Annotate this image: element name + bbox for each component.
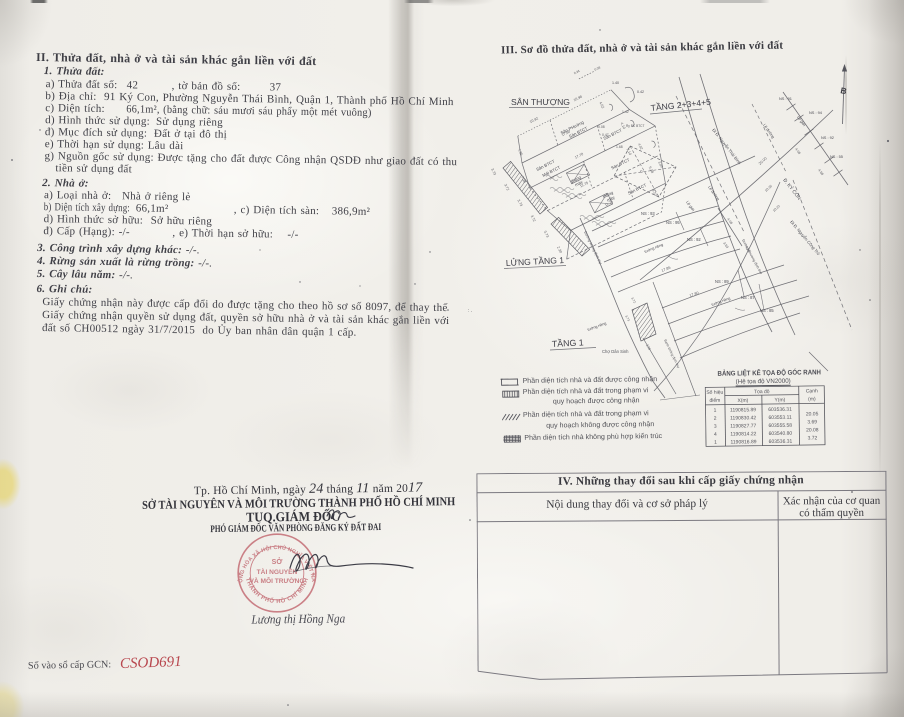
svg-text:VÀ MÔI TRƯỜNG: VÀ MÔI TRƯỜNG: [249, 576, 304, 585]
svg-text:✶: ✶: [237, 571, 242, 578]
svg-text:SỞ: SỞ: [272, 557, 283, 566]
svg-text:TÀI NGUYÊN: TÀI NGUYÊN: [257, 567, 298, 576]
svg-text:✶: ✶: [311, 571, 316, 578]
